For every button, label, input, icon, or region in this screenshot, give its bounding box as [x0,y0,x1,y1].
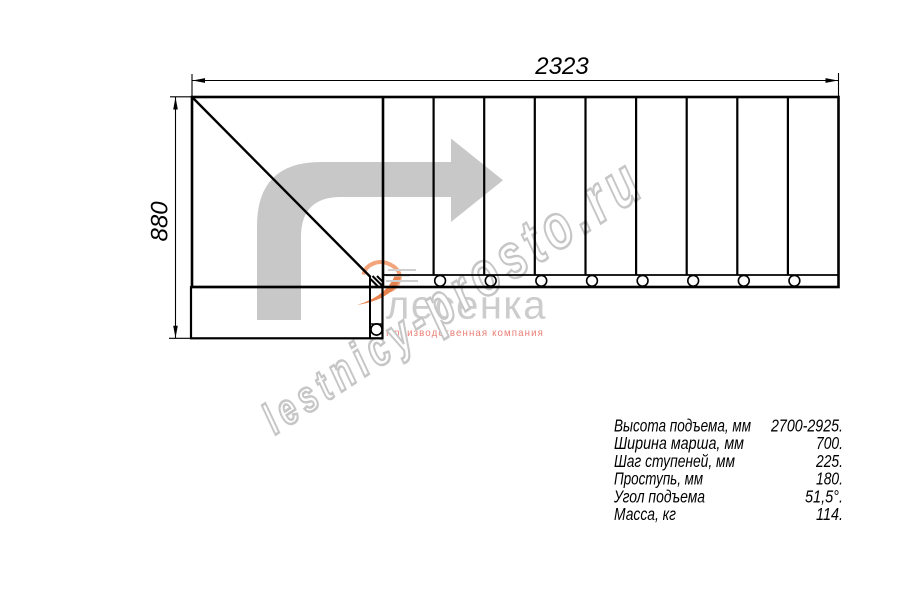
svg-text:880: 880 [147,201,174,242]
svg-text:114.: 114. [816,504,843,524]
svg-text:2323: 2323 [534,53,589,80]
svg-text:Масса, кг: Масса, кг [614,504,676,524]
